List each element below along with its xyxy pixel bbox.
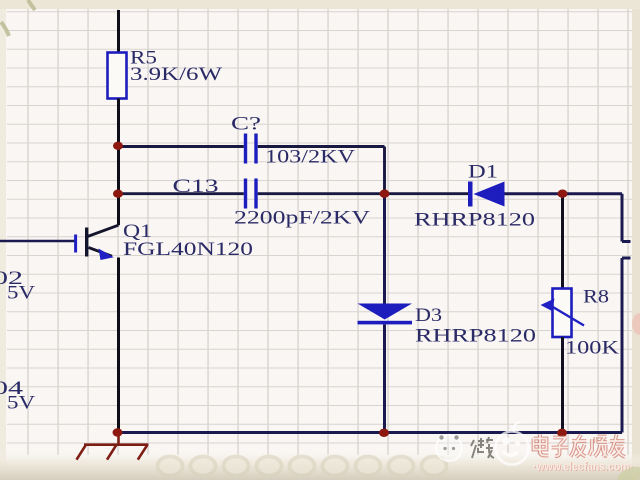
svg-text:D3: D3 [415, 305, 442, 326]
svg-text:D1: D1 [468, 162, 498, 183]
svg-text:3.9K/6W: 3.9K/6W [130, 64, 222, 85]
svg-text:R8: R8 [583, 287, 609, 308]
svg-text:FGL40N120: FGL40N120 [123, 239, 253, 260]
svg-text:100K: 100K [565, 338, 619, 359]
svg-text:103/2KV: 103/2KV [265, 147, 355, 168]
svg-text:RHRP8120: RHRP8120 [414, 210, 535, 231]
svg-text:2200pF/2KV: 2200pF/2KV [234, 208, 370, 229]
svg-text:5V: 5V [7, 393, 35, 414]
svg-text:5V: 5V [7, 283, 35, 304]
svg-text:·www.elecfans.com·: ·www.elecfans.com· [533, 460, 633, 474]
svg-text:C?: C? [231, 114, 261, 135]
svg-text:C13: C13 [173, 176, 219, 197]
svg-text:RHRP8120: RHRP8120 [415, 326, 536, 347]
